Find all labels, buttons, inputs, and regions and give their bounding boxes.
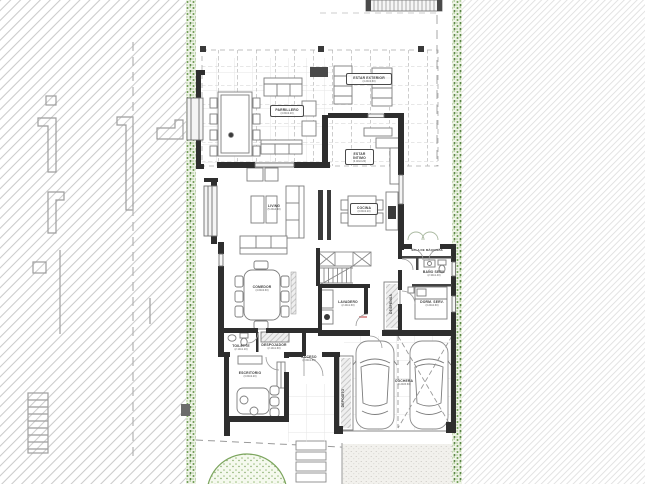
laundry-machine [321,290,333,324]
tree [207,454,287,484]
neighbor-lot-right [462,0,645,484]
dining-set [235,261,289,329]
toilette-fixtures [228,333,248,346]
shrubs [408,232,438,240]
study-furniture [237,356,285,417]
car-left [353,341,397,429]
floor-plan-drawing [0,0,645,484]
driveway [342,443,452,484]
storage-closet [339,356,353,430]
floor-plan-canvas: PARRILLERO (4.60x3.20) ESTAR EXTERIOR (4… [0,0,645,484]
service-bed [408,287,447,319]
pantry-shelves [384,282,400,330]
kitchen-island-table [341,196,383,226]
curtain-screen [291,272,296,314]
planter-deck [366,0,442,11]
stepping-stones [296,441,326,482]
service-bath-fixtures [424,260,446,273]
staircase [318,252,371,286]
mudroom-closet [261,332,289,342]
tv-wall [318,190,331,240]
living-furniture [240,168,304,271]
tv-console [364,128,392,136]
